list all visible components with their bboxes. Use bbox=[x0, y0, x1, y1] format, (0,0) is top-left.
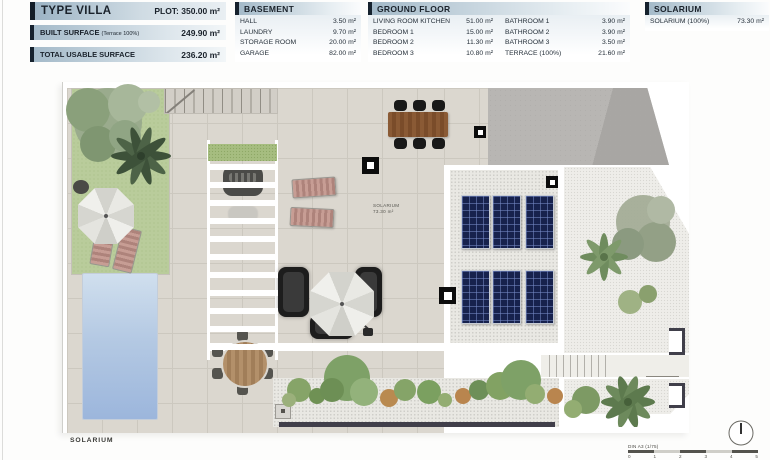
room-label-name: SOLARIUM bbox=[373, 203, 399, 209]
solar-panel bbox=[492, 270, 521, 324]
north-arrow-icon bbox=[727, 419, 755, 447]
total-usable-value: 236.20 m² bbox=[181, 50, 220, 60]
solar-panel bbox=[461, 195, 490, 249]
room-label: SOLARIUM 73.30 m² bbox=[373, 203, 399, 214]
outdoor-sofa bbox=[278, 267, 309, 317]
chair bbox=[432, 138, 445, 149]
hedge-bushes bbox=[269, 344, 569, 422]
solar-panel bbox=[525, 195, 554, 249]
room-label-area: 73.30 m² bbox=[373, 209, 399, 215]
table-row: GARAGE82.00 m² bbox=[240, 49, 356, 60]
dining-set bbox=[388, 100, 448, 150]
table-row: BATHROOM 23.90 m² bbox=[505, 28, 625, 39]
table-row: LIVING ROOM KITCHEN51.00 m² bbox=[373, 17, 493, 28]
chair bbox=[432, 100, 445, 111]
ground-floor-title: GROUND FLOOR bbox=[368, 2, 630, 15]
cantilever-parasol bbox=[310, 272, 374, 336]
hedge bbox=[208, 144, 277, 161]
total-usable-bar: TOTAL USABLE SURFACE 236.20 m² bbox=[30, 47, 226, 62]
floorplan-sheet: TYPE VILLA PLOT: 350.00 m² BUILT SURFACE… bbox=[0, 0, 770, 460]
pergola-kitchen bbox=[207, 140, 278, 360]
chimney-marker bbox=[546, 176, 558, 188]
built-surface-bar: BUILT SURFACE (Terrace 100%) 249.90 m² bbox=[30, 25, 226, 40]
sun-lounger bbox=[291, 176, 336, 198]
solar-panel bbox=[492, 195, 521, 249]
pergola-louvers bbox=[207, 164, 278, 360]
concrete-ramp bbox=[488, 88, 669, 165]
built-surface-value: 249.90 m² bbox=[181, 28, 220, 38]
chair bbox=[413, 100, 426, 111]
site-plan: SOLARIUM 73.30 m² bbox=[62, 82, 689, 433]
chair bbox=[394, 138, 407, 149]
palm-tree bbox=[105, 120, 177, 192]
chair bbox=[413, 138, 426, 149]
scale-bar-segments bbox=[628, 450, 758, 453]
table-row: HALL3.50 m² bbox=[240, 17, 356, 28]
skylight-marker bbox=[439, 287, 456, 304]
solar-panel bbox=[525, 270, 554, 324]
built-surface-sublabel: (Terrace 100%) bbox=[102, 31, 140, 37]
gravel-garden-trees bbox=[558, 162, 698, 427]
table-row: LAUNDRY9.70 m² bbox=[240, 28, 356, 39]
solarium-title: SOLARIUM bbox=[645, 2, 769, 15]
parasol-base bbox=[363, 328, 373, 336]
chimney-marker bbox=[474, 126, 486, 138]
table-row: BEDROOM 310.80 m² bbox=[373, 49, 493, 60]
table-row: TERRACE (100%)21.60 m² bbox=[505, 49, 625, 60]
ground-floor-table: GROUND FLOOR LIVING ROOM KITCHEN51.00 m²… bbox=[368, 2, 630, 62]
plan-caption: SOLARIUM bbox=[70, 437, 113, 444]
table-row: STORAGE ROOM20.00 m² bbox=[240, 38, 356, 49]
basement-table: BASEMENT HALL3.50 m² LAUNDRY9.70 m² STOR… bbox=[235, 2, 361, 62]
boundary-wall bbox=[279, 422, 555, 427]
basement-title: BASEMENT bbox=[235, 2, 361, 15]
scale-ticks: 0 1 2 3 4 5 bbox=[628, 454, 758, 459]
table-row: BATHROOM 33.50 m² bbox=[505, 38, 625, 49]
built-surface-label: BUILT SURFACE bbox=[40, 28, 99, 37]
solarium-table: SOLARIUM SOLARIUM (100%)73.30 m² bbox=[645, 2, 769, 31]
pool bbox=[82, 273, 158, 420]
plot-value: PLOT: 350.00 m² bbox=[154, 6, 220, 16]
page-edge-line bbox=[2, 0, 3, 460]
dining-table bbox=[388, 112, 448, 137]
type-villa-bar: TYPE VILLA PLOT: 350.00 m² bbox=[30, 2, 226, 20]
sun-lounger bbox=[290, 207, 335, 228]
table-row: BEDROOM 211.30 m² bbox=[373, 38, 493, 49]
chair bbox=[394, 100, 407, 111]
table-row: BATHROOM 13.90 m² bbox=[505, 17, 625, 28]
solar-panel-area bbox=[448, 168, 560, 345]
total-usable-label: TOTAL USABLE SURFACE bbox=[40, 50, 135, 59]
garden-grill bbox=[73, 180, 89, 194]
solar-panel bbox=[461, 270, 490, 324]
type-villa-title: TYPE VILLA bbox=[41, 5, 111, 17]
table-row: BEDROOM 115.00 m² bbox=[373, 28, 493, 39]
skylight-marker bbox=[362, 157, 379, 174]
table-row: SOLARIUM (100%)73.30 m² bbox=[650, 17, 764, 28]
